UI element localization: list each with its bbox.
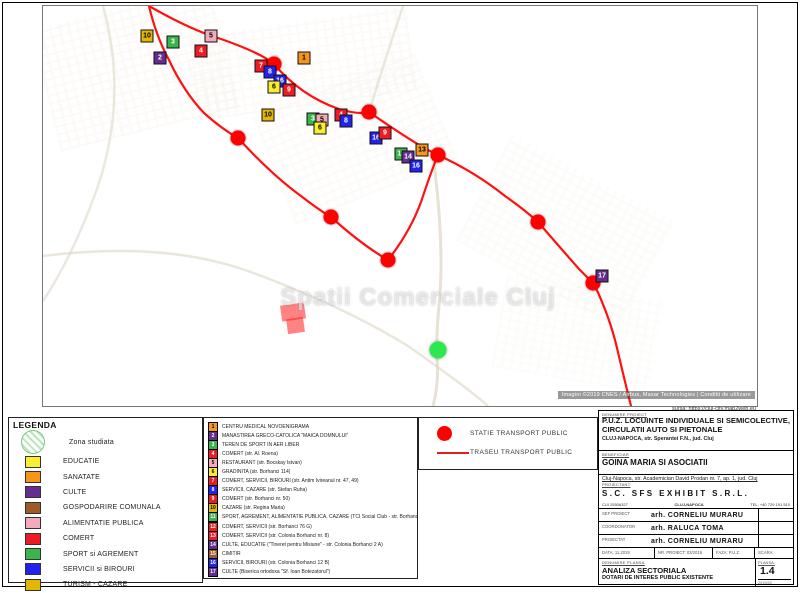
meta-scara: SCARA: (755, 548, 793, 558)
poi-list-item: 13COMERT, SERVICII (str. Colonia Borhanc… (208, 531, 417, 540)
study-zone-dot[interactable] (430, 342, 447, 359)
poi-map-marker[interactable]: 6 (314, 122, 327, 135)
poi-item-label: COMERT (str. Al. Roena) (222, 451, 278, 457)
poi-list-box: 1CENTRU MEDICAL NOVOENIGRAMA2MANASTIREA … (203, 417, 418, 579)
poi-map-marker[interactable]: 17 (596, 270, 609, 283)
meta-data: DATA: 11.2019 (599, 548, 655, 558)
legend-title: LEGENDA (13, 420, 202, 430)
poi-list-item: 8SERVICII, CAZARE (str. Stefan Ruha) (208, 486, 417, 495)
poi-list-item: 10CAZARE (str. Regina Maria) (208, 504, 417, 513)
poi-map-marker[interactable]: 6 (268, 81, 281, 94)
legend-item-label: ALIMENTATIE PUBLICA (63, 520, 144, 527)
legend-item-label: COMERT (63, 535, 94, 542)
map-attribution: Imagini ©2019 CNES / Airbus, Maxar Techn… (558, 391, 755, 399)
poi-items: 1CENTRU MEDICAL NOVOENIGRAMA2MANASTIREA … (208, 422, 417, 577)
client-name: GOINA MARIA SI ASOCIATII (602, 458, 790, 467)
person-name: arh. RALUCA TOMA (651, 522, 758, 534)
poi-item-label: CULTE, EDUCATIE ("Tineret pentru Misiune… (222, 542, 383, 548)
client-label: BENEFICIAR (602, 452, 790, 457)
legend-item-label: Zona studiata (69, 439, 114, 446)
legend-swatch-icon (25, 471, 41, 483)
legend-item: TURISM - CAZARE (25, 577, 202, 592)
legend-item-label: EDUCATIE (63, 458, 99, 465)
poi-item-label: COMERT, SERVICII (str. Colonia Borhanci … (222, 533, 329, 539)
person-name: arh. CORNELIU MURARU (651, 535, 758, 547)
poi-item-label: COMERT, SERVICII (str. Borhanci 76 G) (222, 524, 312, 530)
legend-swatch-icon (25, 548, 41, 560)
sheet-name-cell: DENUMIRE PLANSA ANALIZA SECTORIALA DOTAR… (599, 559, 755, 586)
poi-map-marker[interactable]: 16 (410, 160, 423, 173)
person-row: SEF PROIECTarh. CORNELIU MURARU (599, 509, 793, 522)
poi-marker-icon: 17 (208, 567, 218, 577)
legend-item: GOSPODARIRE COMUNALA (25, 500, 202, 515)
poi-item-label: MANASTIREA GRECO-CATOLICA "MAICA DOMNULU… (222, 433, 348, 439)
legend-item-label: CULTE (63, 489, 86, 496)
transport-station-dot[interactable] (324, 210, 339, 225)
poi-item-label: COMERT, SERVICII, BIROURI (str. Antim Iv… (222, 478, 359, 484)
legend-item-label: TURISM - CAZARE (63, 581, 127, 588)
poi-item-label: COMERT (str. Borhanci nr. 50) (222, 496, 290, 502)
route-legend-label: TRASEU TRANSPORT PUBLIC (470, 449, 572, 456)
poi-map-marker[interactable]: 13 (416, 144, 429, 157)
transport-station-dot[interactable] (531, 215, 546, 230)
legend-items: EDUCATIESANATATECULTEGOSPODARIRE COMUNAL… (13, 454, 202, 593)
station-dot-icon (437, 426, 452, 441)
person-row: COORDONATORarh. RALUCA TOMA (599, 522, 793, 535)
legend-swatch-icon (25, 502, 41, 514)
poi-list-item: 12COMERT, SERVICII (str. Borhanci 76 G) (208, 522, 417, 531)
poi-map-marker[interactable]: 2 (154, 52, 167, 65)
legend-item: ALIMENTATIE PUBLICA (25, 516, 202, 531)
legend-swatch-icon (25, 517, 41, 529)
legend-item: CULTE (25, 485, 202, 500)
map-viewport[interactable]: 103254781669110356481691114131617 Spatii… (42, 5, 758, 407)
poi-list-item: 16SERVICII, BIROURI (str. Colonia Borhan… (208, 558, 417, 567)
legend-swatch-icon (25, 579, 41, 591)
transport-route-legend: TRASEU TRANSPORT PUBLIC (437, 449, 572, 456)
legend-box: LEGENDA Zona studiata EDUCATIESANATATECU… (8, 417, 203, 583)
legend-item: EDUCATIE (25, 454, 202, 469)
poi-list-item: 1CENTRU MEDICAL NOVOENIGRAMA (208, 422, 417, 431)
project-title: P.U.Z. LOCUINTE INDIVIDUALE SI SEMICOLEC… (602, 417, 790, 434)
sheet-label: DENUMIRE PLANSA (602, 560, 752, 565)
poi-item-label: CULTE (Biserica ortodoxa "Sf. Ioan Botez… (222, 569, 330, 575)
signature-cell (758, 535, 793, 547)
designer-tel: TEL: +40 729 191 510 (750, 502, 790, 507)
person-name: arh. CORNELIU MURARU (651, 509, 758, 521)
sheet-number-cell: PLANSA: 1.4 2019/20 (755, 559, 793, 586)
sheet-section: DENUMIRE PLANSA ANALIZA SECTORIALA DOTAR… (599, 559, 793, 586)
poi-list-item: 7COMERT, SERVICII, BIROURI (str. Antim I… (208, 477, 417, 486)
legend-item: SPORT si AGREMENT (25, 546, 202, 561)
designer-name: S.C. SFS EXHIBIT S.R.L. (602, 489, 790, 498)
transport-route-line (149, 6, 438, 155)
poi-item-label: CIMITIR (222, 551, 241, 557)
poi-item-label: CAZARE (str. Regina Maria) (222, 505, 285, 511)
poi-map-marker[interactable]: 8 (340, 115, 353, 128)
poi-map-marker[interactable]: 10 (141, 30, 154, 43)
poi-map-marker[interactable]: 5 (205, 30, 218, 43)
poi-item-label: GRADINITA (str. Borhanci 114) (222, 469, 290, 475)
legend-item-label: SANATATE (63, 474, 100, 481)
poi-map-marker[interactable]: 1 (298, 52, 311, 65)
transport-route-line (149, 6, 438, 260)
designer-cui: CUI 25506327 (602, 502, 628, 507)
poi-map-marker[interactable]: 4 (195, 45, 208, 58)
poi-list-item: 5RESTAURANT (str. Bocskay Istvan) (208, 458, 417, 467)
poi-list-item: 3TEREN DE SPORT IN AER LIBER (208, 440, 417, 449)
legend-item-zona-studiata: Zona studiata (21, 430, 202, 454)
poi-item-label: SERVICII, BIROURI (str. Colonia Borhanci… (222, 560, 329, 566)
plansa-subtext: 2019/20 (758, 579, 791, 585)
meta-row: DATA: 11.2019 NR. PROIECT: 03/2019 FAZA:… (599, 548, 793, 559)
client-section: BENEFICIAR GOINA MARIA SI ASOCIATII (599, 451, 793, 475)
signature-cell (758, 522, 793, 534)
sheet-title-line2: DOTARI DE INTERES PUBLIC EXISTENTE (602, 575, 752, 581)
poi-list-item: 17CULTE (Biserica ortodoxa "Sf. Ioan Bot… (208, 568, 417, 577)
project-section: DENUMIRE PROIECT P.U.Z. LOCUINTE INDIVID… (599, 411, 793, 451)
route-line-icon (437, 452, 469, 454)
designer-section: Cluj-Napoca, str. Academician David Prod… (599, 475, 793, 509)
legend-item-label: SPORT si AGREMENT (63, 551, 139, 558)
poi-map-marker[interactable]: 10 (262, 109, 275, 122)
watermark: Spatii Comerciale Cluj (238, 284, 598, 312)
legend-swatch-icon (25, 563, 41, 575)
signature-cell (758, 509, 793, 521)
poi-item-label: CENTRU MEDICAL NOVOENIGRAMA (222, 424, 309, 430)
designer-city: CLUJ-NAPOCA (674, 502, 703, 507)
legend-item-label: SERVICII si BIROURI (63, 566, 135, 573)
legend-item: COMERT (25, 531, 202, 546)
station-legend-label: STATIE TRANSPORT PUBLIC (470, 430, 568, 437)
transport-route-layer (43, 6, 757, 406)
legend-item-label: GOSPODARIRE COMUNALA (63, 504, 161, 511)
poi-list-item: 9COMERT (str. Borhanci nr. 50) (208, 495, 417, 504)
designer-label: PROIECTANT (602, 482, 790, 487)
plansa-number: 1.4 (756, 565, 793, 577)
person-role: SEF PROIECT (599, 509, 651, 521)
poi-item-label: SPORT, AGREMENT, ALIMENTATIE PUBLICA, CA… (222, 514, 417, 520)
poi-item-label: TEREN DE SPORT IN AER LIBER (222, 442, 299, 448)
legend-swatch-icon (25, 486, 41, 498)
person-role: PROIECTAT (599, 535, 651, 547)
project-address: CLUJ-NAPOCA, str. Sperantei F.N., jud. C… (602, 436, 790, 442)
person-row: PROIECTATarh. CORNELIU MURARU (599, 535, 793, 548)
poi-list-item: 11SPORT, AGREMENT, ALIMENTATIE PUBLICA, … (208, 513, 417, 522)
sheet-title-line1: ANALIZA SECTORIALA (602, 566, 752, 575)
poi-list-item: 14CULTE, EDUCATIE ("Tineret pentru Misiu… (208, 540, 417, 549)
transport-station-legend: STATIE TRANSPORT PUBLIC (437, 426, 568, 441)
poi-list-item: 4COMERT (str. Al. Roena) (208, 449, 417, 458)
transport-legend-box: STATIE TRANSPORT PUBLIC TRASEU TRANSPORT… (418, 417, 598, 470)
transport-station-dot[interactable] (362, 105, 377, 120)
poi-list-item: 2MANASTIREA GRECO-CATOLICA "MAICA DOMNUL… (208, 431, 417, 440)
poi-map-marker[interactable]: 3 (167, 36, 180, 49)
legend-item: SANATATE (25, 469, 202, 484)
poi-item-label: RESTAURANT (str. Bocskay Istvan) (222, 460, 302, 466)
meta-faza: FAZA: P.U.Z. (713, 548, 755, 558)
legend-swatch-icon (25, 533, 41, 545)
poi-map-marker[interactable]: 9 (379, 127, 392, 140)
person-role: COORDONATOR (599, 522, 651, 534)
zona-studiata-swatch-icon (21, 430, 45, 454)
people-rows: SEF PROIECTarh. CORNELIU MURARUCOORDONAT… (599, 509, 793, 548)
transport-station-dot[interactable] (231, 131, 246, 146)
transport-station-dot[interactable] (381, 253, 396, 268)
legend-item: SERVICII si BIROURI (25, 562, 202, 577)
poi-list-item: 15CIMITIR (208, 549, 417, 558)
transport-station-dot[interactable] (431, 148, 446, 163)
poi-map-marker[interactable]: 9 (283, 84, 296, 97)
legend-swatch-icon (25, 456, 41, 468)
poi-item-label: SERVICII, CAZARE (str. Stefan Ruha) (222, 487, 307, 493)
poi-list-item: 6GRADINITA (str. Borhanci 114) (208, 467, 417, 476)
designer-contact-row: CUI 25506327 CLUJ-NAPOCA TEL: +40 729 19… (602, 502, 790, 507)
meta-nr-proiect: NR. PROIECT: 03/2019 (655, 548, 713, 558)
title-block: DENUMIRE PROIECT P.U.Z. LOCUINTE INDIVID… (598, 410, 794, 585)
